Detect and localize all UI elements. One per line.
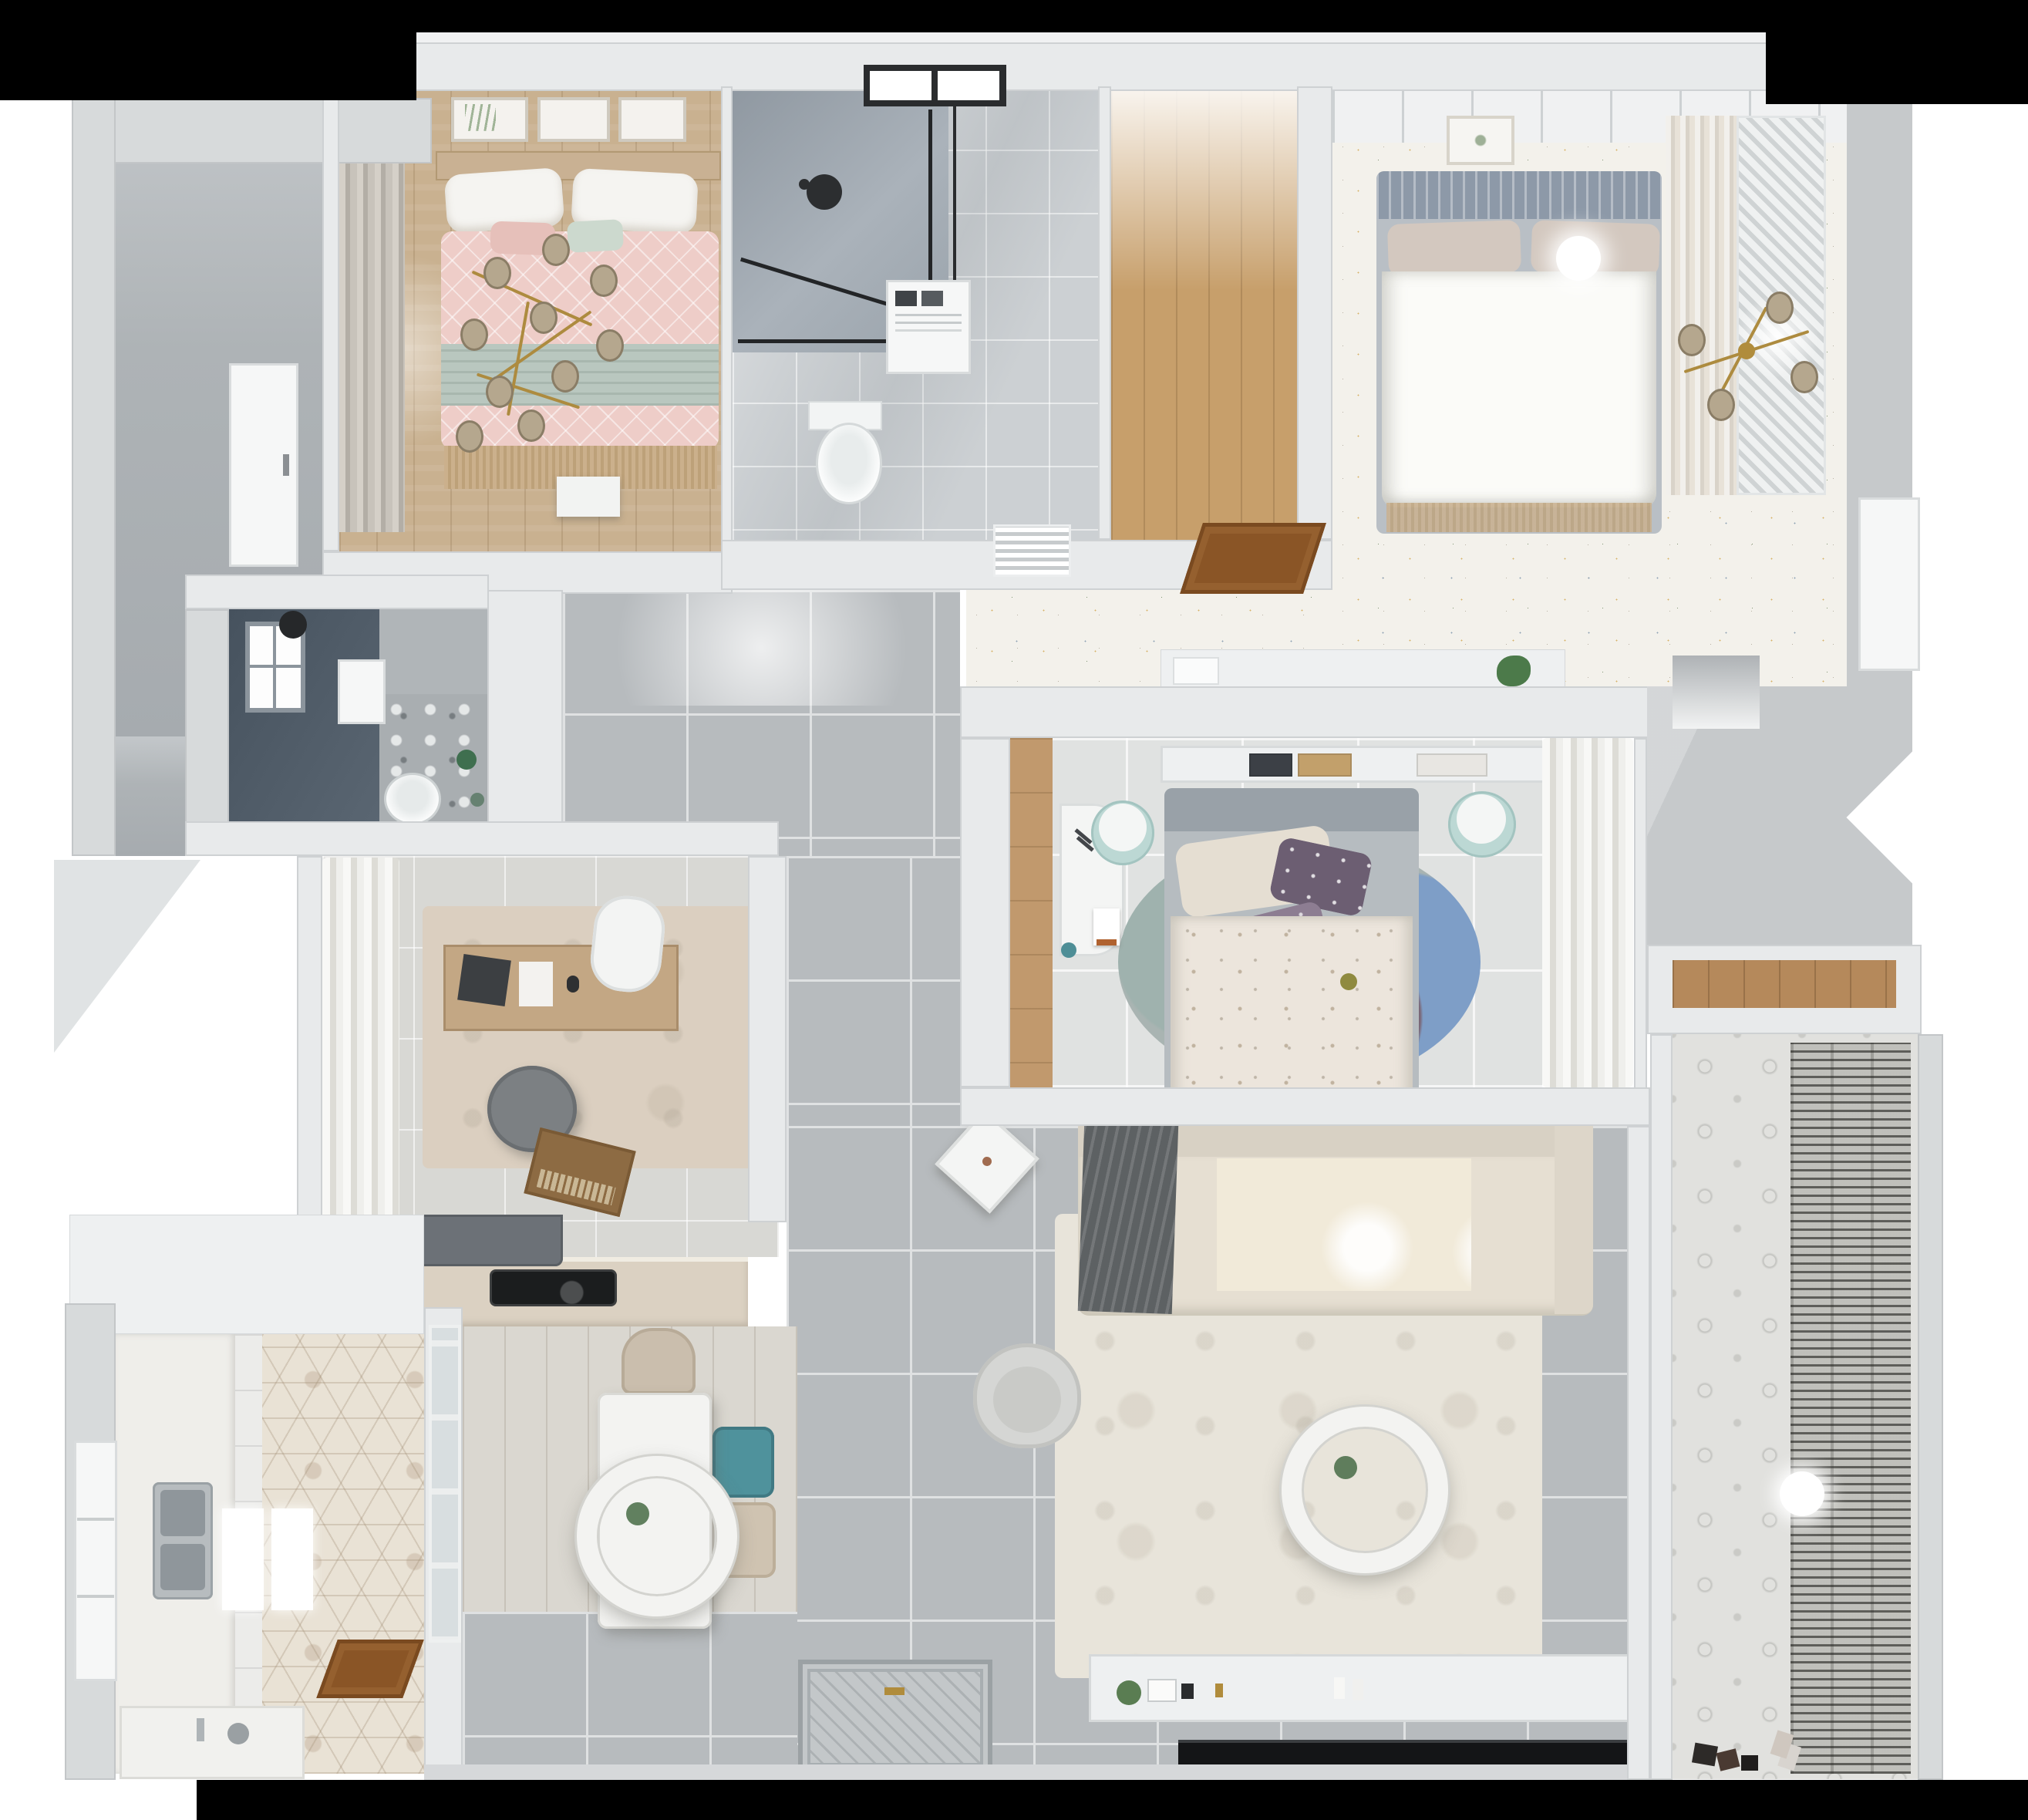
wall-smallbath-right	[487, 590, 563, 856]
picture-frame-2	[537, 97, 610, 142]
guest-ceiling-light-glow	[1556, 236, 1601, 281]
kids-stool-1	[1091, 800, 1154, 865]
wall-bathroom-closet	[1098, 86, 1111, 540]
console-plant	[1117, 1680, 1141, 1705]
stool-top	[1457, 794, 1506, 844]
office-mouse	[567, 976, 579, 993]
living-armchair	[973, 1343, 1081, 1448]
washer-panel-dark-2	[921, 291, 943, 306]
chandelier-bulb	[551, 360, 579, 393]
kids-curtains	[1542, 738, 1633, 1087]
stool-top	[1099, 804, 1147, 851]
wall-closet-bedroom-guest	[1297, 86, 1332, 540]
guest-headboard	[1376, 171, 1662, 219]
guest-duvet	[1382, 271, 1656, 507]
chandelier-bulb	[542, 234, 570, 266]
dining-chair-teal	[712, 1427, 774, 1498]
console-candles	[1334, 1677, 1345, 1699]
small-bath-plant	[456, 750, 477, 770]
guest-wall-art	[1447, 116, 1514, 165]
balcony-ball-lamp	[1780, 1471, 1824, 1516]
balcony-toy-3	[1741, 1755, 1758, 1771]
chandelier-bulb	[486, 376, 514, 408]
kitchen-island	[120, 1706, 305, 1779]
pendant-plant-center	[1334, 1456, 1357, 1479]
wall-office-right	[748, 856, 787, 1222]
kids-headboard	[1164, 788, 1419, 831]
guest-pillow-1	[1387, 220, 1521, 277]
frame-bottom-bar	[197, 1780, 2028, 1820]
shower-head-icon	[807, 174, 842, 210]
chandelier-bulb	[530, 302, 558, 334]
window-bar	[250, 665, 301, 668]
doormat-gold-detail	[884, 1687, 905, 1695]
wall-balcony-left	[1650, 1034, 1673, 1780]
sputnik-bulb	[1791, 361, 1818, 393]
sink-basin-1	[160, 1490, 205, 1536]
wall-kids-right	[1634, 738, 1647, 1126]
picture-frame-1	[451, 97, 528, 142]
gold-chandelier	[443, 228, 636, 451]
niche-wood-shelf	[1673, 960, 1896, 1008]
armchair-seat	[993, 1367, 1061, 1433]
kitchen-glass-partition	[429, 1325, 461, 1643]
office-notepad	[519, 962, 553, 1006]
cutting-board-1	[222, 1508, 264, 1610]
bathroom-small-floor	[379, 609, 489, 694]
bedroom-pink-curtains	[339, 116, 405, 532]
wall-top-left-step	[72, 98, 432, 163]
living-ring-pendant	[1282, 1407, 1448, 1573]
foot-bench	[557, 477, 620, 517]
washer-panel-lines	[895, 314, 962, 316]
wall-living-bottom	[424, 1764, 1650, 1781]
wall-smallbath-left	[185, 609, 229, 829]
balcony-toy-1	[1692, 1743, 1718, 1767]
wall-smallbath-top	[185, 575, 489, 609]
wall-balcony-right	[1918, 1034, 1943, 1780]
books-white-stack	[1417, 753, 1487, 777]
chandelier-bulb	[483, 257, 511, 289]
tv-console	[1089, 1654, 1650, 1722]
hallway-glow	[563, 590, 960, 706]
wall-guest-south	[960, 686, 1666, 738]
chandelier-bulb	[456, 420, 483, 453]
chandelier-bulb	[590, 265, 618, 297]
picture-frame-3	[618, 97, 686, 142]
guest-bed-fringe	[1386, 503, 1652, 532]
kids-stool-2	[1448, 791, 1516, 858]
frame-top-left-corner	[0, 0, 416, 100]
sputnik-bulb	[1766, 292, 1794, 324]
wall-kids-south	[960, 1087, 1650, 1126]
side-table-flower	[981, 1155, 994, 1168]
chandelier-bulb	[517, 410, 545, 442]
balcony-roller-blinds	[1791, 1043, 1911, 1774]
window-bar	[77, 1518, 114, 1521]
main-bath-window	[864, 65, 1006, 106]
ledge-white-stack	[1173, 657, 1219, 685]
console-gold-bottle	[1215, 1684, 1223, 1697]
bedroom-kids-wood-strip	[1010, 738, 1053, 1087]
desk-handles-orange	[1097, 939, 1117, 945]
kids-cup-teal	[1061, 942, 1076, 958]
floorplan-canvas	[0, 0, 2028, 1820]
wall-living-right	[1627, 1126, 1650, 1780]
window-pane	[938, 71, 999, 100]
wall-bedroom-pink-right	[721, 86, 733, 551]
foyer-door	[229, 363, 298, 567]
kids-duvet-gold-sprig	[1340, 973, 1357, 990]
frame-top-right-corner	[1766, 0, 2028, 104]
wall-office-top	[185, 821, 779, 856]
sofa-armrest-right	[1555, 1120, 1593, 1314]
console-black-box	[1181, 1684, 1194, 1699]
toilet-bowl	[816, 423, 882, 504]
dining-chair-beige-top	[622, 1328, 696, 1394]
hallway-floor-vertical	[787, 856, 960, 1126]
kids-wall-shelf	[1161, 746, 1565, 783]
sputnik-bulb	[1707, 389, 1735, 421]
washing-machine-top	[886, 280, 971, 374]
sofa-chaise-lit	[1217, 1158, 1471, 1291]
sputnik-chandelier	[1673, 287, 1820, 422]
sputnik-hub	[1738, 342, 1755, 359]
office-curtains	[322, 858, 399, 1255]
sofa-dark-throw	[1078, 1121, 1179, 1314]
kitchen-north-cabinets	[69, 1215, 424, 1334]
washer-panel-dark-1	[895, 291, 917, 306]
wall-left-outer	[72, 91, 116, 856]
entry-tile-floor	[463, 1612, 797, 1780]
shaft-niche	[1673, 656, 1760, 729]
island-kettle	[227, 1723, 249, 1744]
small-bath-toilet	[384, 773, 441, 825]
kids-duvet-floral	[1171, 916, 1413, 1104]
dining-ring-pendant	[577, 1456, 737, 1616]
chandelier-bulb	[460, 318, 488, 351]
books-dark	[1249, 753, 1292, 777]
small-bath-wall-cabinet	[338, 659, 386, 724]
desk-pens	[1074, 828, 1092, 844]
guest-room-open-door	[1180, 523, 1326, 594]
cutting-board-2	[271, 1508, 313, 1610]
entry-doormat	[798, 1660, 992, 1775]
wall-office-left	[297, 856, 322, 1257]
books-tan	[1298, 753, 1352, 777]
shower-pipe	[953, 102, 956, 301]
island-faucet	[197, 1718, 204, 1741]
kitchen-double-sink	[153, 1482, 213, 1599]
wall-bedroom-pink-left	[322, 91, 339, 551]
sink-basin-2	[160, 1544, 205, 1590]
sputnik-bulb	[1678, 324, 1706, 356]
cooktop	[490, 1269, 617, 1306]
pendant-plant-center	[626, 1502, 649, 1525]
console-white-box	[1147, 1679, 1177, 1702]
outside-shadow-wedge-left	[54, 860, 200, 1053]
chandelier-bulb	[596, 329, 624, 362]
door-handle	[283, 454, 289, 476]
window-pane	[870, 71, 931, 100]
office-monitor	[457, 954, 511, 1006]
ledge-plant	[1497, 656, 1531, 686]
ac-vent	[995, 527, 1069, 575]
closet-floor	[1111, 86, 1297, 540]
wall-kids-left	[960, 738, 1010, 1087]
right-wall-door-panel	[1858, 497, 1920, 671]
small-bath-shower-head	[279, 611, 307, 639]
kitchen-window	[74, 1441, 117, 1681]
